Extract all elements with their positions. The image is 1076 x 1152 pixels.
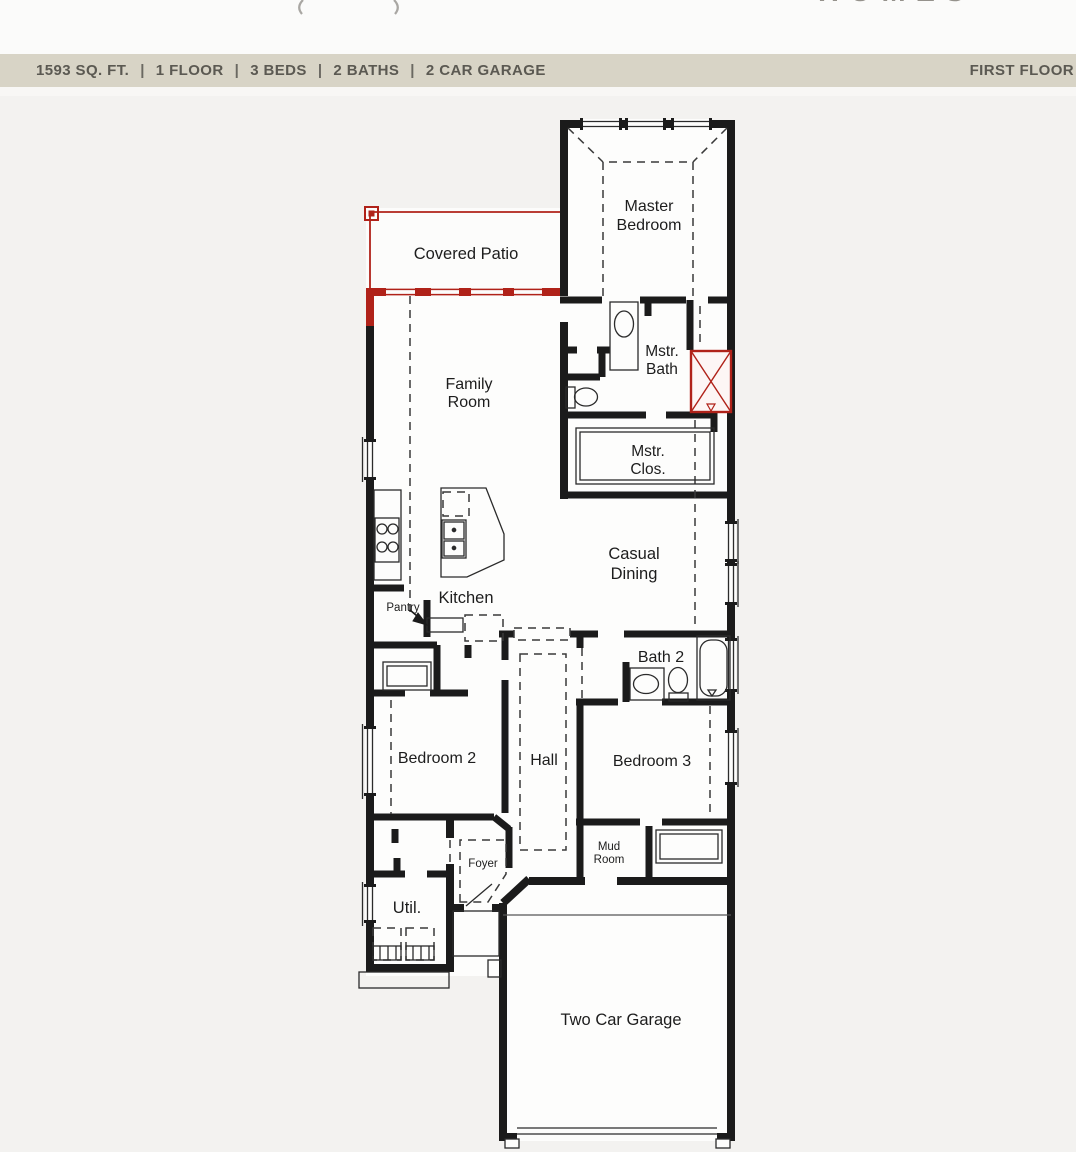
master-shower-icon: [691, 351, 731, 412]
room-label-bath2: Bath 2: [638, 649, 684, 666]
room-label-pantry: Pantry: [386, 602, 419, 614]
room-label-master-bath: Mstr.Bath: [645, 343, 679, 378]
room-label-garage: Two Car Garage: [560, 1011, 681, 1029]
room-label-family-room: FamilyRoom: [445, 376, 492, 411]
logo-parenthesis-marks: [299, 0, 398, 14]
room-label-foyer: Foyer: [468, 858, 498, 870]
room-label-kitchen: Kitchen: [438, 589, 493, 607]
room-label-utility: Util.: [393, 899, 421, 917]
room-label-mud-room: MudRoom: [594, 841, 625, 866]
room-label-bedroom2: Bedroom 2: [398, 750, 476, 767]
floor-plan-drawing: Covered Patio MasterBedroom Mstr.Bath Ms…: [0, 0, 1076, 1152]
room-label-covered-patio: Covered Patio: [414, 245, 519, 263]
room-label-bedroom3: Bedroom 3: [613, 753, 691, 770]
room-label-hall: Hall: [530, 752, 558, 769]
room-label-master-closet: Mstr.Clos.: [630, 443, 665, 478]
